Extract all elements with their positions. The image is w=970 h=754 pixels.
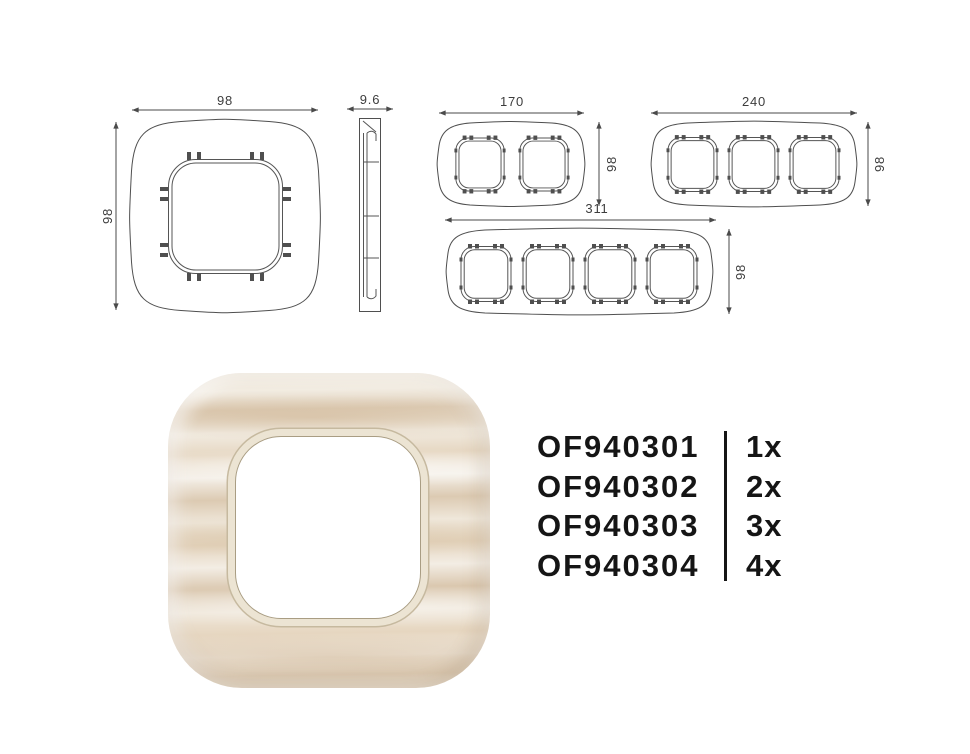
dim-single-width: 98: [217, 93, 233, 108]
order-qty: 4x: [746, 546, 782, 586]
order-code: OF940301: [537, 427, 724, 467]
order-code-column: OF940301 OF940302 OF940303 OF940304: [537, 427, 724, 585]
order-qty: 1x: [746, 427, 782, 467]
order-code: OF940303: [537, 506, 724, 546]
dim-single-height: 98: [100, 208, 115, 224]
dim-quad-height: 98: [733, 264, 748, 280]
order-code: OF940302: [537, 467, 724, 507]
order-qty: 2x: [746, 467, 782, 507]
product-photo-wood-frame: [168, 373, 490, 688]
product-sheet: 98 98 9.6 170 98: [0, 0, 970, 754]
dim-double-width: 170: [500, 94, 524, 109]
drawing-single-side: 9.6: [347, 92, 393, 312]
order-qty-column: 1x 2x 3x 4x: [746, 427, 782, 585]
dim-triple-height: 98: [872, 156, 887, 172]
frame-opening: [235, 436, 421, 619]
drawing-quad-front: 311 98: [445, 201, 748, 315]
dim-triple-width: 240: [742, 94, 766, 109]
order-table-divider: [724, 431, 727, 581]
order-qty: 3x: [746, 506, 782, 546]
order-code: OF940304: [537, 546, 724, 586]
drawing-double-front: 170 98: [437, 94, 619, 207]
dim-double-height: 98: [604, 156, 619, 172]
dim-single-thickness: 9.6: [360, 92, 380, 107]
technical-drawings: 98 98 9.6 170 98: [0, 0, 970, 360]
order-table: OF940301 OF940302 OF940303 OF940304 1x 2…: [537, 427, 782, 585]
dim-quad-width: 311: [585, 201, 608, 216]
drawing-triple-front: 240 98: [651, 94, 887, 207]
drawing-single-front: 98 98: [100, 93, 320, 313]
